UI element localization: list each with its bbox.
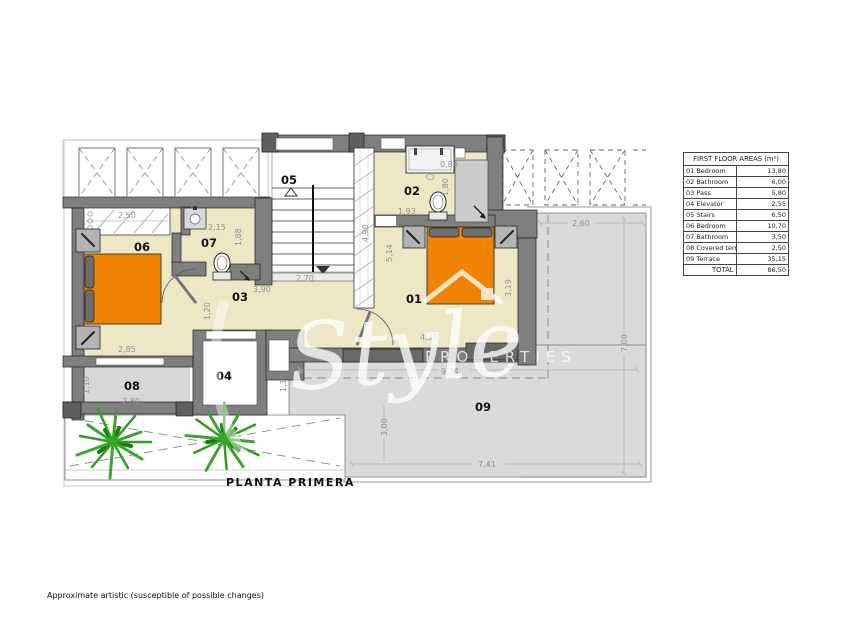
dimension-label: 2,80 (122, 397, 140, 406)
room-label-02: 02 (404, 184, 420, 198)
dimension-label: 1,10 (279, 374, 288, 392)
pillow (85, 256, 94, 288)
disclaimer-text: Approximate artistic (susceptible of pos… (47, 591, 264, 600)
dimension-label: 1,80 (441, 178, 450, 196)
table-row: 06 Bedroom10,70 (684, 221, 789, 232)
sink-room-07 (184, 206, 206, 229)
dimension-label: 2,15 (208, 223, 226, 232)
dimension-label: 5,14 (385, 244, 394, 262)
window-room-08 (96, 358, 164, 365)
areas-table-header: FIRST FLOOR AREAS (m²) (684, 153, 789, 166)
window-square-02 (455, 148, 465, 158)
room-label-07: 07 (201, 236, 217, 250)
room-label-08: 08 (124, 379, 140, 393)
table-row: 01 Bedroom13,80 (684, 166, 789, 177)
dimension-label: 4,90 (361, 224, 370, 242)
pergola-boxes-left (79, 148, 259, 197)
window-room-02 (381, 138, 405, 149)
floor-plan-drawing: 2,50 2,15 1,88 0,80 1,80 1,93 5,14 4,90 … (0, 0, 850, 620)
table-row: 05 Stairs6,50 (684, 210, 789, 221)
dimension-label: 0,80 (440, 160, 458, 169)
table-row: 07 Bathroom3,50 (684, 232, 789, 243)
room-label-03: 03 (232, 290, 248, 304)
table-row: 03 Pass5,80 (684, 188, 789, 199)
dimension-label: 1,10 (82, 376, 91, 394)
bed-room-06 (84, 254, 161, 324)
table-row: 02 Bathroom6,00 (684, 177, 789, 188)
dimension-label: 2,60 (572, 219, 590, 228)
dimension-label: 7,41 (478, 460, 496, 469)
room-label-09: 09 (475, 400, 491, 414)
table-total-row: TOTAL86,50 (684, 265, 789, 276)
table-row: 08 Covered terrace2,50 (684, 243, 789, 254)
dimension-label: 7,00 (620, 334, 629, 352)
table-row: 09 Terrace35,15 (684, 254, 789, 265)
window-stairs (276, 138, 333, 150)
dimension-label: 3,00 (380, 418, 389, 436)
shower-room-02 (455, 160, 488, 222)
stairs-05 (272, 152, 354, 281)
pillow (429, 228, 459, 237)
door-gap-room-02 (376, 216, 396, 226)
table-row: 04 Elevator2,55 (684, 199, 789, 210)
dimension-label: 2,70 (296, 274, 314, 283)
dimension-label: 1,20 (203, 302, 212, 320)
dimension-label: 1,93 (398, 207, 416, 216)
pillow (462, 228, 492, 237)
dimension-label: 1,88 (234, 228, 243, 246)
dimension-label: 3,90 (253, 285, 271, 294)
pergola-boxes-right (502, 150, 646, 205)
toilet-room-07 (213, 253, 231, 280)
pillow (85, 290, 94, 322)
room-label-05: 05 (281, 173, 297, 187)
dimension-label: 2,85 (118, 345, 136, 354)
room-label-06: 06 (134, 240, 150, 254)
watermark-caps-text: PROPERTIES (425, 348, 577, 366)
floor-plan-page: 2,50 2,15 1,88 0,80 1,80 1,93 5,14 4,90 … (0, 0, 850, 620)
plan-title: PLANTA PRIMERA (226, 476, 355, 489)
dimension-label: 2,50 (118, 211, 136, 220)
areas-table: FIRST FLOOR AREAS (m²) 01 Bedroom13,80 0… (683, 152, 789, 276)
